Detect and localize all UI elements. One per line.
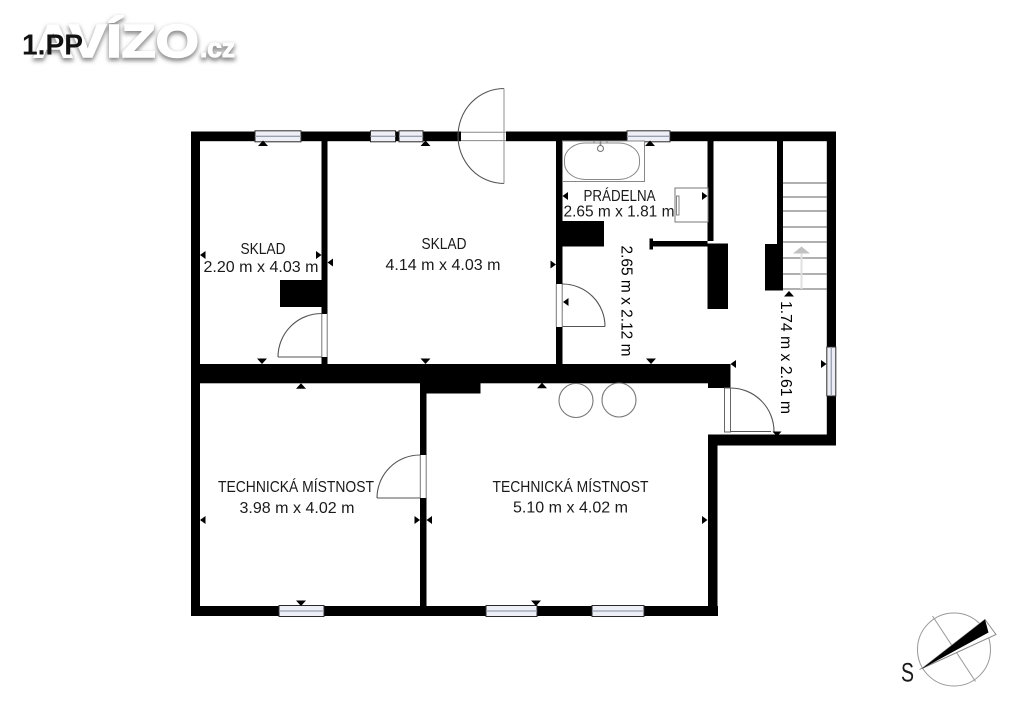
svg-text:2.20 m x 4.03 m: 2.20 m x 4.03 m [204,259,319,276]
svg-text:.cz: .cz [200,33,235,63]
svg-text:2.65 m x 2.12 m: 2.65 m x 2.12 m [618,246,635,357]
svg-text:3.98 m x 4.02 m: 3.98 m x 4.02 m [240,500,355,517]
svg-text:1.PP: 1.PP [22,30,83,62]
svg-text:PRÁDELNA: PRÁDELNA [584,188,657,205]
svg-text:SKLAD: SKLAD [422,236,467,253]
svg-text:5.10 m x 4.02 m: 5.10 m x 4.02 m [513,500,628,517]
svg-text:S: S [901,658,914,688]
svg-text:1.74 m x 2.61 m: 1.74 m x 2.61 m [777,301,794,414]
svg-text:SKLAD: SKLAD [241,241,286,258]
svg-text:4.14 m x 4.03 m: 4.14 m x 4.03 m [386,257,501,274]
svg-text:TECHNICKÁ MÍSTNOST: TECHNICKÁ MÍSTNOST [493,477,649,496]
svg-text:2.65 m x 1.81 m: 2.65 m x 1.81 m [564,204,675,221]
svg-text:TECHNICKÁ MÍSTNOST: TECHNICKÁ MÍSTNOST [218,477,374,496]
